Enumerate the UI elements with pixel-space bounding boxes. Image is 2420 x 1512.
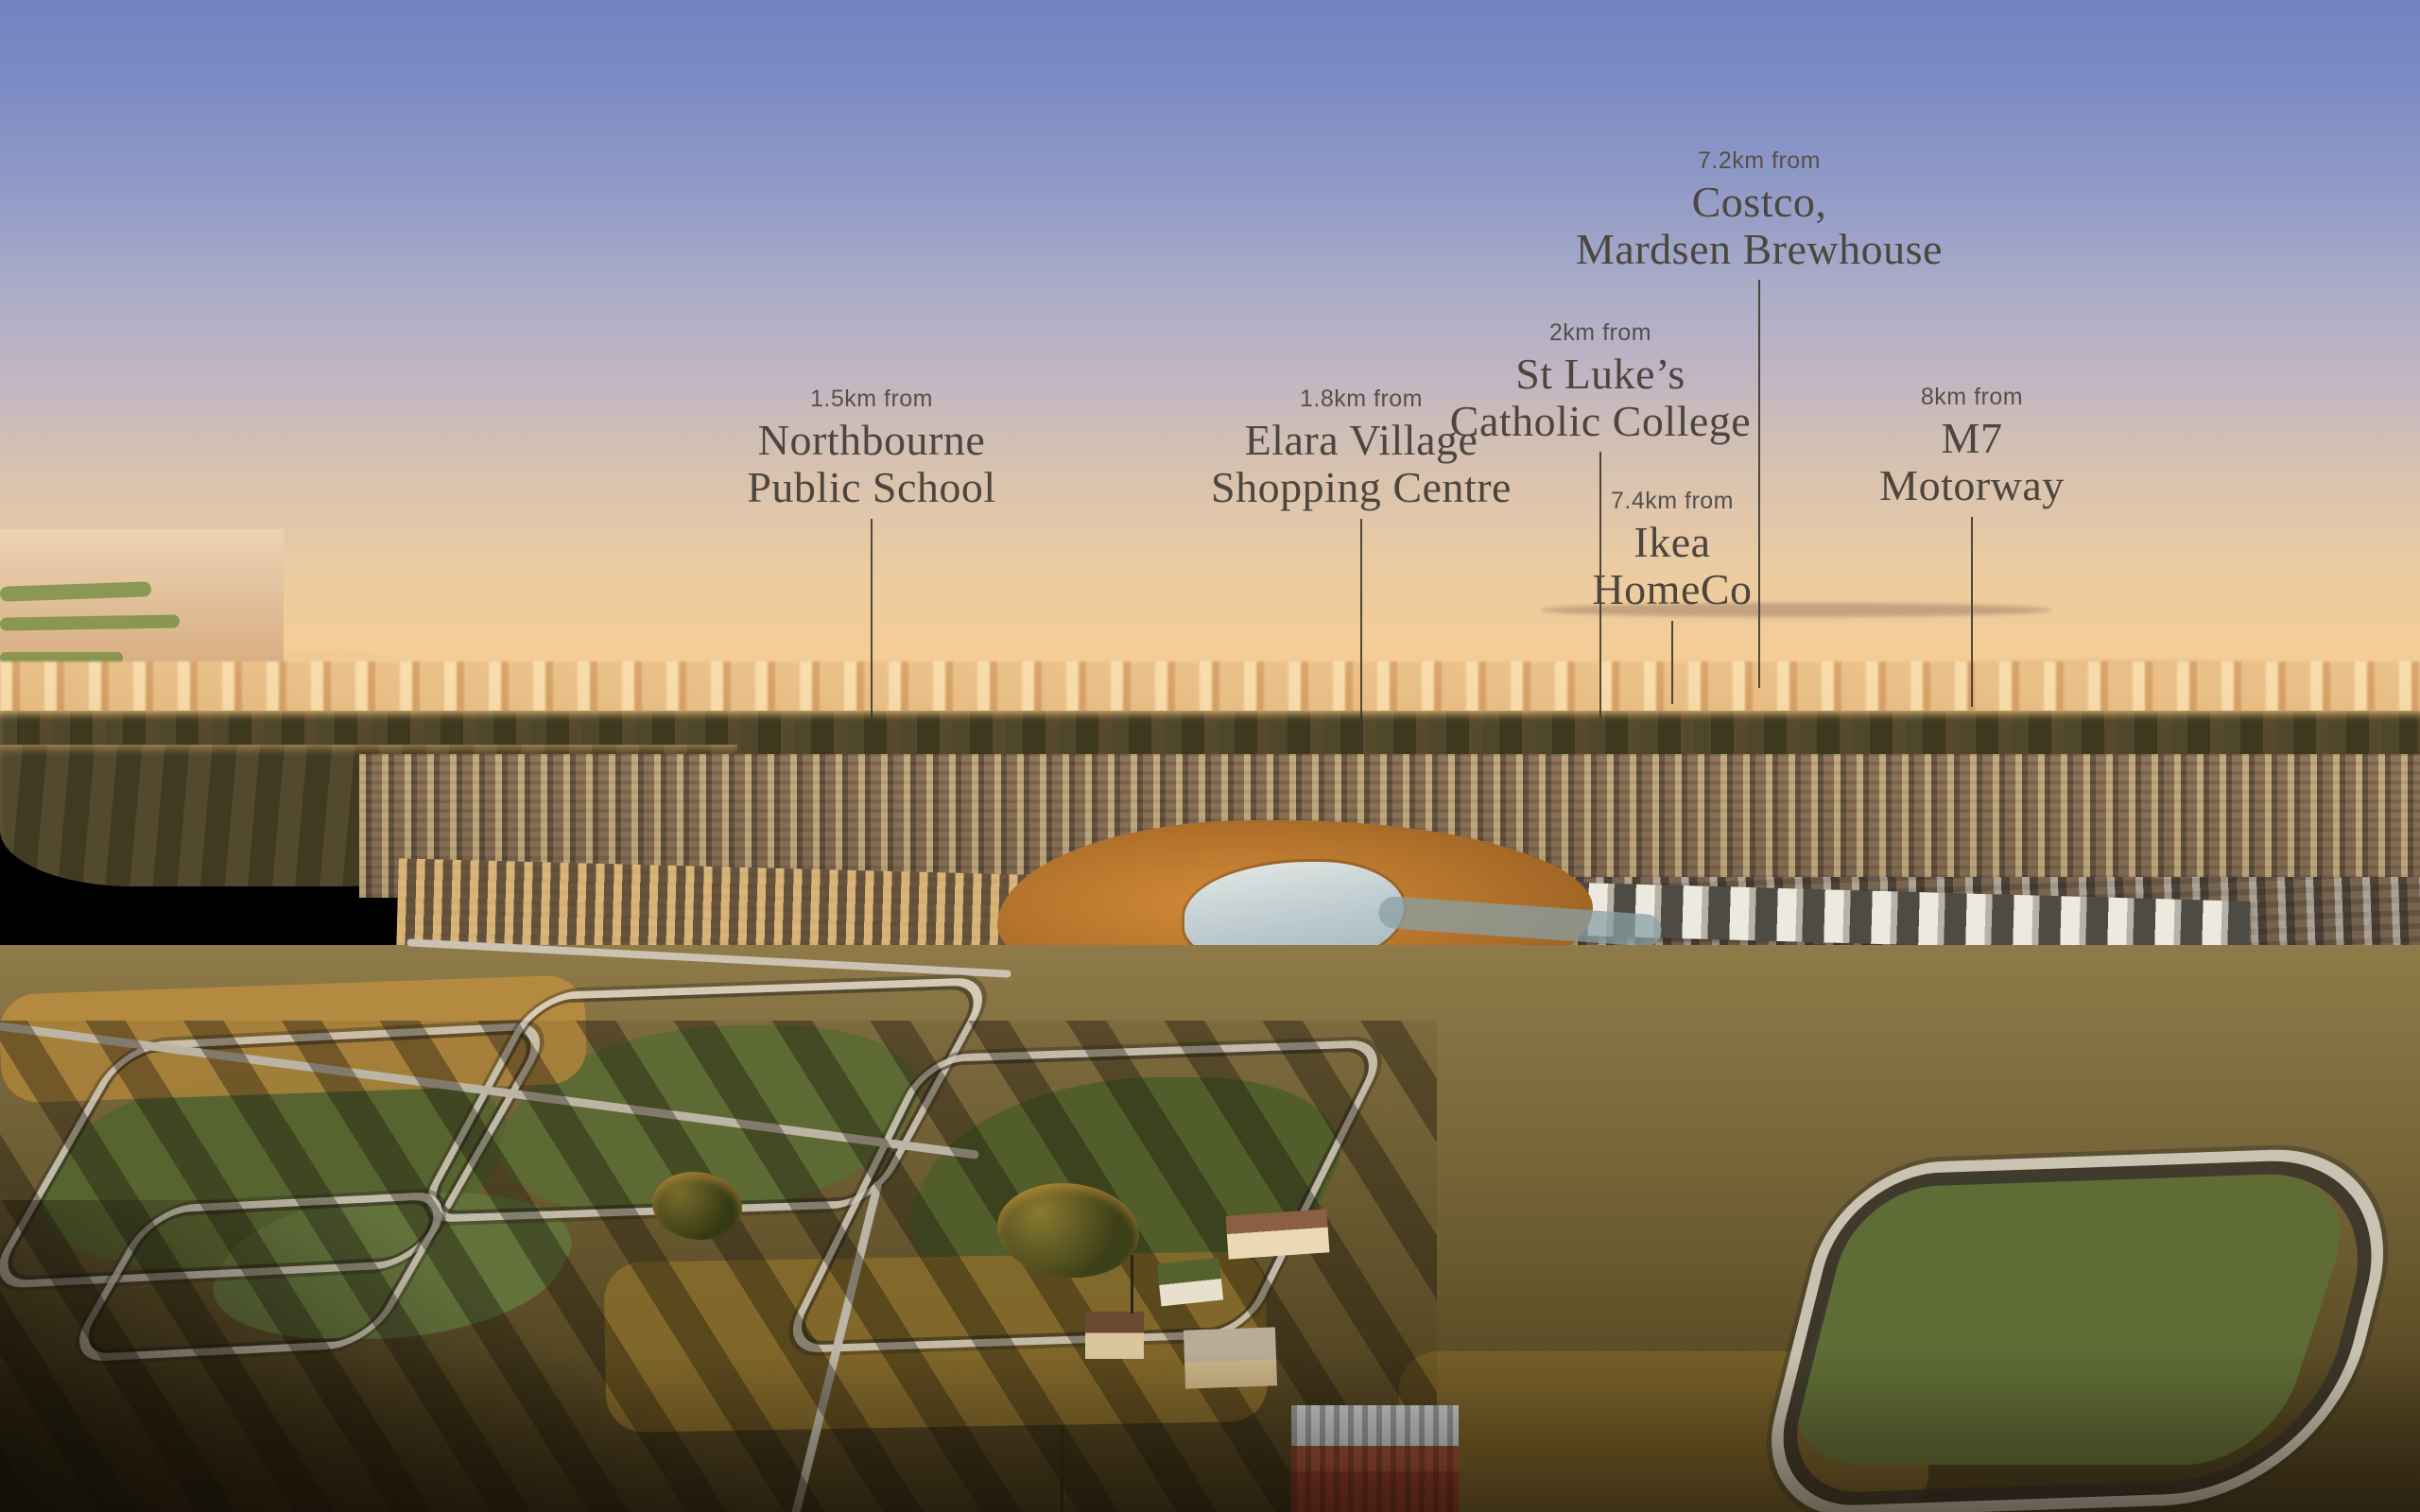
- place-name-line1: Ikea: [1341, 519, 2003, 566]
- leader-line-ikea: [1671, 621, 1673, 704]
- place-name-line2: Motorway: [1641, 462, 2303, 509]
- place-name-line1: Costco,: [1428, 179, 2090, 226]
- distance-label: 2km from: [1270, 319, 1931, 347]
- aerial-photo: 1.5km from Northbourne Public School 1.8…: [0, 0, 2420, 1512]
- callout-costco-mardsen-brewhouse: 7.2km from Costco, Mardsen Brewhouse: [1428, 147, 2090, 273]
- bottom-vignette: [0, 1351, 2420, 1512]
- farm-shed: [1157, 1258, 1223, 1307]
- distance-label: 8km from: [1641, 384, 2303, 411]
- power-pole: [1131, 1255, 1133, 1314]
- place-name-line1: M7: [1641, 415, 2303, 462]
- place-name-line2: Mardsen Brewhouse: [1428, 226, 2090, 273]
- place-name-line2: HomeCo: [1341, 566, 2003, 613]
- farmhouse: [1226, 1209, 1330, 1259]
- distance-label: 7.2km from: [1428, 147, 2090, 175]
- callout-m7-motorway: 8km from M7 Motorway: [1641, 384, 2303, 509]
- sky: [0, 0, 2420, 761]
- leader-line-northbourne: [871, 519, 873, 734]
